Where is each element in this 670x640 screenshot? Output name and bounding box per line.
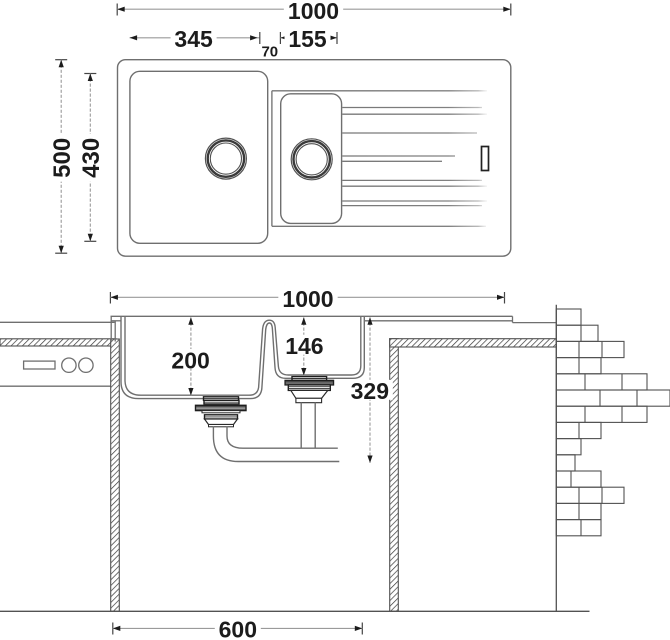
svg-text:146: 146: [285, 333, 323, 359]
svg-text:1000: 1000: [288, 0, 339, 24]
svg-text:200: 200: [171, 347, 209, 373]
svg-text:345: 345: [174, 26, 213, 52]
svg-text:70: 70: [261, 44, 278, 61]
svg-text:500: 500: [49, 138, 76, 178]
svg-text:329: 329: [351, 378, 389, 404]
svg-text:1000: 1000: [282, 286, 333, 312]
svg-text:430: 430: [78, 138, 105, 178]
svg-text:155: 155: [288, 26, 327, 52]
svg-text:600: 600: [219, 616, 257, 640]
